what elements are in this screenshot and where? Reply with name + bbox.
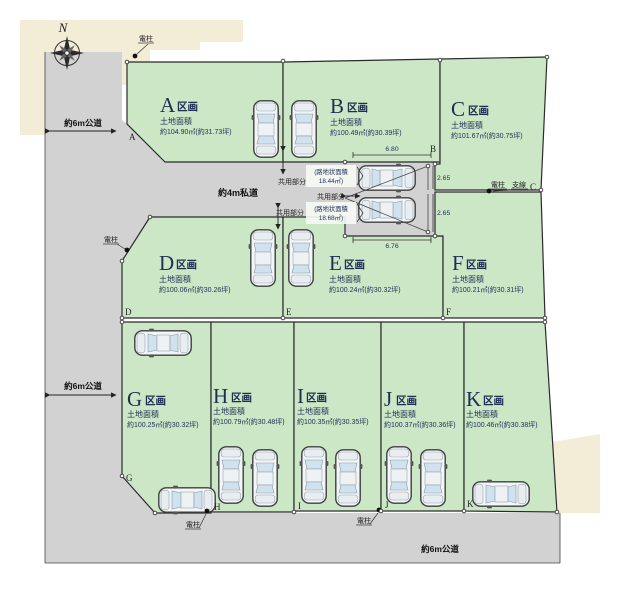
plot-h-letter: H — [213, 384, 228, 408]
dim-lower-depth: 2.65 — [437, 210, 450, 217]
car-icon — [385, 447, 414, 503]
corridor-note-2: (路地状面積 18.68㎡) — [306, 202, 363, 224]
corner-letter-g: G — [126, 473, 133, 483]
corridor-note-2-caption: (路地状面積 — [314, 204, 348, 213]
plot-f-letter: F — [452, 251, 464, 275]
plot-j-suffix: 区画 — [396, 395, 417, 407]
corridor-note-1-caption: (路地状面積 — [314, 167, 348, 176]
car-icon — [359, 196, 415, 225]
plot-h-suffix: 区画 — [231, 392, 252, 404]
corner-letter-c: C — [530, 182, 536, 192]
plot-d-suffix: 区画 — [176, 259, 197, 271]
car-icon — [287, 230, 316, 286]
ground-beige-bottomright — [552, 434, 600, 513]
plot-h-area-value: 約100.79㎡(約30.48坪) — [213, 417, 285, 426]
corner-letter-e: E — [286, 307, 292, 317]
plot-f: F 区画 土地面積 約100.21㎡(約30.31坪) — [435, 192, 545, 318]
utility-pole-dot — [133, 54, 138, 59]
utility-pole-label: 電柱 — [357, 516, 371, 525]
dim-upper-depth: 2.65 — [437, 175, 450, 182]
plot-e-area-value: 約100.24㎡(約30.32坪) — [329, 285, 401, 294]
utility-pole-dot — [125, 248, 130, 253]
plot-i-suffix: 区画 — [306, 392, 327, 404]
plot-f-suffix: 区画 — [466, 259, 487, 271]
corridor-note-1: (路地状面積 18.44㎡) — [306, 165, 363, 187]
plot-i-area-value: 約100.35㎡(約30.35坪) — [297, 417, 369, 426]
road-label-left-top: 約6m公道 — [64, 118, 102, 128]
corner-letter-i: I — [298, 501, 301, 511]
plot-b-area-caption: 土地面積 — [330, 117, 362, 127]
common-area-label-top: 共用部分 — [278, 177, 306, 186]
road-label-private: 約4m私道 — [218, 187, 258, 198]
utility-pole-label: 電柱 — [104, 235, 118, 244]
plot-g-area-value: 約100.25㎡(約30.32坪) — [127, 420, 199, 429]
car-icon — [359, 164, 415, 193]
guy-wire-label: 支線 — [512, 180, 526, 189]
car-icon — [251, 450, 280, 506]
plot-layout-diagram: A 区画 土地面積 約104.90㎡(約31.73坪) B 区画 土地面積 約1… — [0, 0, 620, 598]
road-label-left-mid: 約6m公道 — [64, 381, 102, 391]
plot-j-area-value: 約100.37㎡(約30.36坪) — [384, 420, 456, 429]
plot-c-suffix: 区画 — [468, 105, 489, 117]
plot-c-area-caption: 土地面積 — [451, 120, 483, 130]
corner-letter-k: K — [467, 499, 474, 509]
car-icon — [217, 447, 246, 503]
car-icon — [300, 447, 329, 503]
utility-pole-label: 電柱 — [186, 520, 200, 529]
car-icon — [290, 101, 319, 157]
plot-k-area-caption: 土地面積 — [466, 409, 498, 419]
plot-h-area-caption: 土地面積 — [213, 406, 245, 416]
plot-e-letter: E — [329, 251, 342, 275]
plot-k-suffix: 区画 — [483, 395, 504, 407]
plot-d-area-caption: 土地面積 — [159, 274, 191, 284]
road-bottom — [45, 513, 560, 563]
car-icon — [473, 480, 529, 509]
utility-pole-dot — [205, 509, 210, 514]
plot-g-area-caption: 土地面積 — [127, 409, 159, 419]
corner-letter-f: F — [446, 307, 451, 317]
corner-letter-h: H — [214, 502, 221, 512]
utility-pole-label: 電柱 — [139, 34, 153, 43]
dim-bottom-width: 6.76 — [385, 243, 398, 250]
car-icon — [419, 450, 448, 506]
plot-i-letter: I — [297, 384, 304, 408]
plot-f-area-value: 約100.21㎡(約30.31坪) — [452, 285, 524, 294]
car-icon — [334, 450, 363, 506]
corridor-note-1-value: 18.44㎡) — [319, 176, 343, 185]
plot-a-letter: A — [160, 93, 176, 117]
common-area-label-mid: 共用部分 — [317, 192, 345, 201]
corridor-note-2-value: 18.68㎡) — [319, 213, 343, 222]
plot-g-suffix: 区画 — [145, 395, 166, 407]
common-area-label-bottom: 共用部分 — [276, 208, 304, 217]
road-left — [45, 52, 122, 563]
plot-c: C 区画 土地面積 約101.67㎡(約30.75坪) — [435, 57, 547, 190]
plot-d-area-value: 約100.06㎡(約30.26坪) — [159, 285, 231, 294]
utility-pole-label: 電柱 — [491, 180, 505, 189]
corner-letter-b: B — [430, 144, 436, 154]
car-icon — [135, 329, 191, 358]
plot-j-area-caption: 土地面積 — [384, 409, 416, 419]
plot-f-area-caption: 土地面積 — [452, 274, 484, 284]
plot-c-letter: C — [451, 97, 465, 121]
corner-letter-j: J — [385, 500, 389, 510]
north-label: N — [58, 20, 69, 35]
plot-b-area-value: 約100.49㎡(約30.39坪) — [330, 128, 402, 137]
plot-j-letter: J — [384, 387, 392, 411]
plot-k-letter: K — [466, 387, 481, 411]
car-icon — [252, 101, 281, 157]
plot-d-letter: D — [159, 251, 174, 275]
plot-a-area-value: 約104.90㎡(約31.73坪) — [160, 127, 232, 136]
dim-top-width: 6.80 — [385, 146, 398, 153]
corner-letter-a: A — [129, 132, 136, 142]
plot-c-area-value: 約101.67㎡(約30.75坪) — [451, 131, 523, 140]
utility-pole-dot — [487, 189, 492, 194]
plot-a-suffix: 区画 — [177, 101, 198, 113]
corner-letter-d: D — [125, 307, 132, 317]
road-label-bottom: 約6m公道 — [421, 544, 459, 554]
plot-i-area-caption: 土地面積 — [297, 406, 329, 416]
plot-b-letter: B — [330, 94, 344, 118]
plot-g-letter: G — [127, 387, 142, 411]
plot-e-area-caption: 土地面積 — [329, 274, 361, 284]
plot-e-suffix: 区画 — [344, 259, 365, 271]
plot-a-area-caption: 土地面積 — [160, 116, 192, 126]
diagram-svg: A 区画 土地面積 約104.90㎡(約31.73坪) B 区画 土地面積 約1… — [0, 0, 620, 598]
plot-b-suffix: 区画 — [347, 102, 368, 114]
car-icon — [249, 230, 278, 286]
plot-k-area-value: 約100.46㎡(約30.38坪) — [466, 420, 538, 429]
